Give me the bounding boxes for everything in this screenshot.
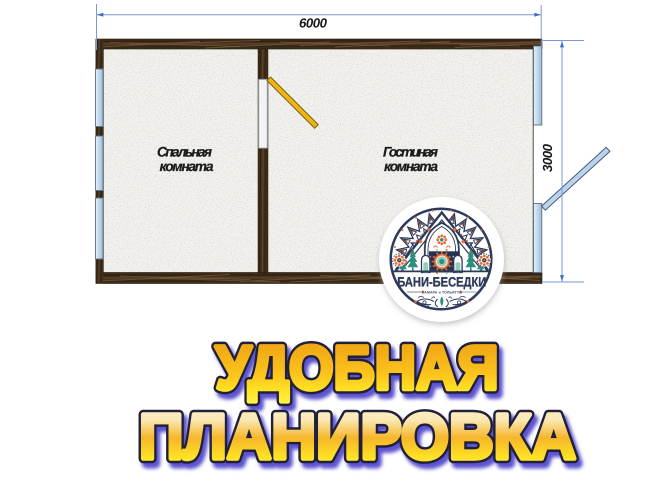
svg-text:САМАРА и ТОЛЬЯТТИ: САМАРА и ТОЛЬЯТТИ bbox=[422, 290, 462, 294]
svg-text:БАНИ-БЕСЕДКИ: БАНИ-БЕСЕДКИ bbox=[397, 275, 486, 290]
svg-text:комната: комната bbox=[384, 159, 438, 174]
svg-text:6000: 6000 bbox=[299, 16, 328, 31]
svg-text:ПЛАНИРОВКА: ПЛАНИРОВКА bbox=[139, 400, 576, 472]
svg-text:Спальная: Спальная bbox=[157, 145, 212, 160]
svg-text:комната: комната bbox=[160, 159, 214, 174]
svg-text:Гостиная: Гостиная bbox=[383, 144, 438, 159]
svg-text:3000: 3000 bbox=[540, 143, 555, 172]
svg-text:УДОБНАЯ: УДОБНАЯ bbox=[216, 334, 499, 403]
